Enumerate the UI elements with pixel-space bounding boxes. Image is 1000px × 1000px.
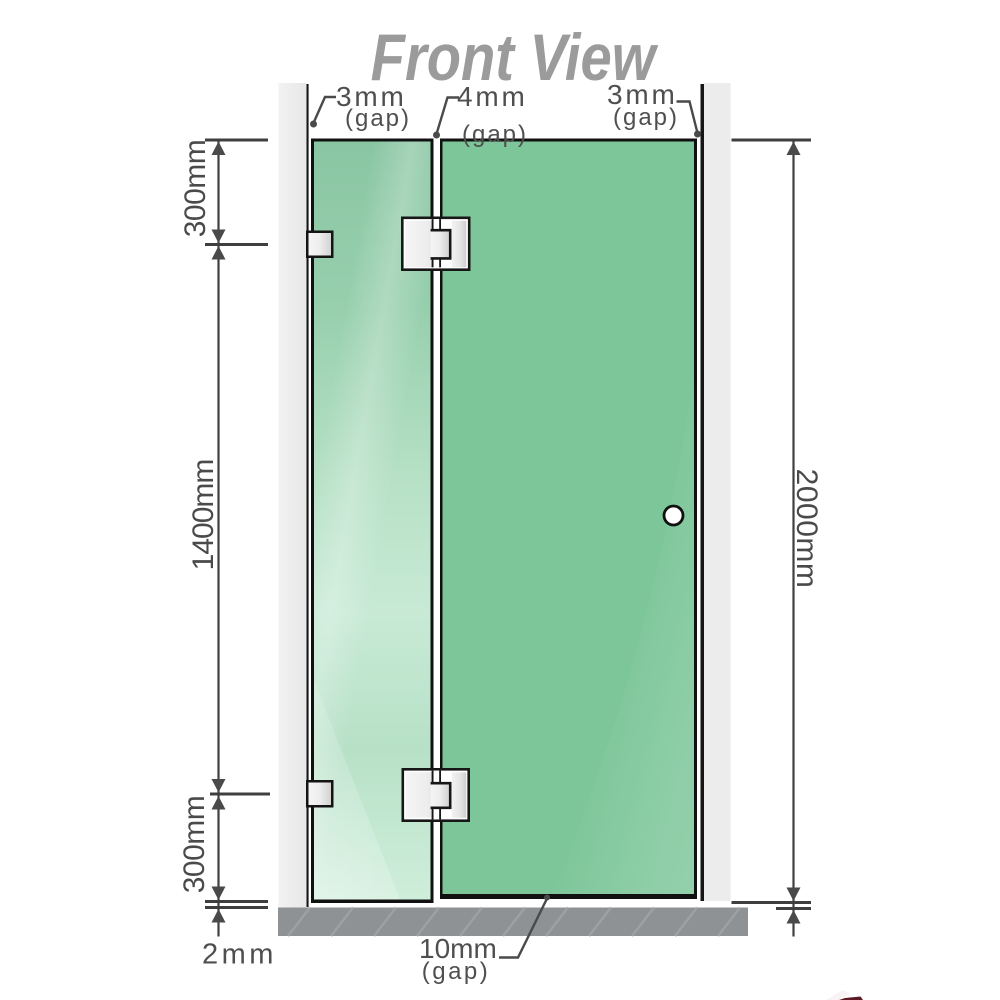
svg-text:1400mm: 1400mm: [187, 460, 220, 571]
svg-text:(gap): (gap): [345, 105, 411, 132]
svg-text:(gap): (gap): [422, 958, 491, 985]
svg-text:300mm: 300mm: [178, 796, 211, 894]
svg-text:(gap): (gap): [613, 104, 679, 131]
svg-text:2000mm: 2000mm: [790, 469, 823, 589]
svg-text:300mm: 300mm: [179, 140, 212, 238]
svg-text:2mm: 2mm: [202, 939, 277, 971]
svg-text:(gap): (gap): [462, 121, 528, 148]
svg-text:Front View: Front View: [371, 21, 659, 94]
